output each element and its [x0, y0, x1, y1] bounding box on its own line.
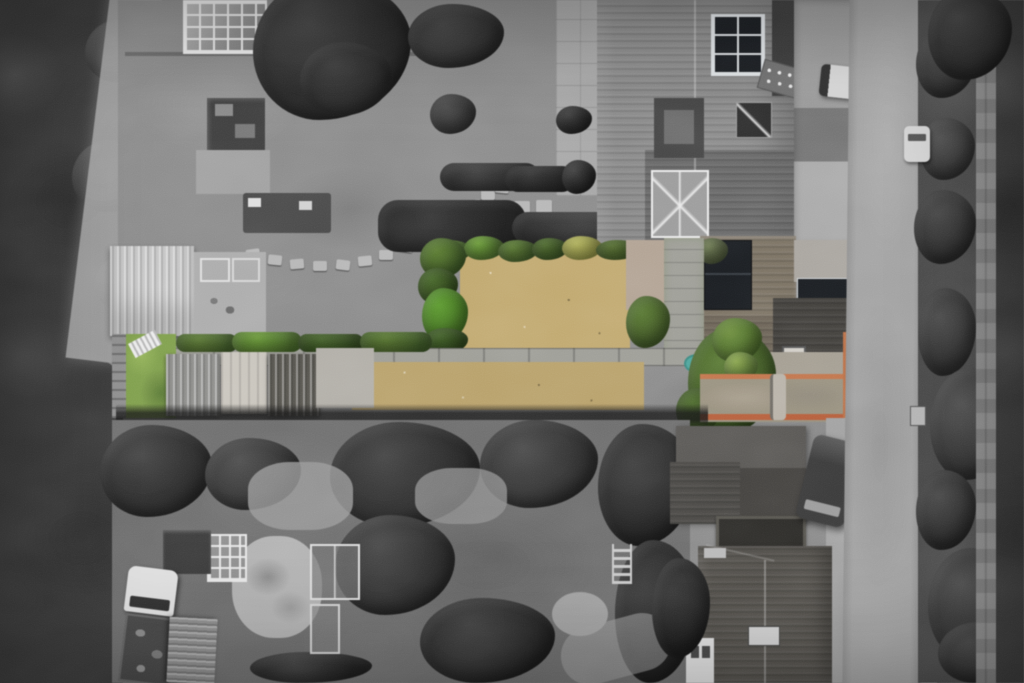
bottom-house-roof — [698, 546, 832, 683]
concrete-pad — [316, 348, 374, 408]
bottom-house-chimney — [748, 626, 780, 646]
van-windshield — [804, 499, 841, 517]
white-patio-top-left — [194, 252, 266, 336]
drain-pipe — [770, 374, 786, 420]
car-window-band — [908, 134, 926, 141]
planter-boxes — [243, 193, 331, 233]
stepping-stone — [290, 258, 305, 269]
subject-lawn-lower — [352, 362, 644, 410]
ground-light-patch — [415, 468, 507, 524]
road-right — [842, 0, 927, 683]
stepping-stone — [379, 250, 393, 260]
patio-frame — [232, 258, 260, 282]
stepping-stone — [335, 259, 350, 271]
stepping-stone — [481, 190, 495, 200]
shed-roof-item — [215, 104, 233, 116]
hedge-strip-left — [232, 332, 302, 352]
patio-top-left — [196, 150, 270, 194]
roof-light-item — [704, 548, 726, 558]
roadside-bin — [910, 406, 926, 426]
conservatory — [651, 170, 709, 238]
patio-clutter — [204, 292, 244, 322]
planter-lid — [248, 198, 261, 207]
gable-window — [702, 646, 710, 658]
garage-annex-roof — [670, 462, 740, 524]
stepping-stone — [313, 261, 327, 271]
subject-lawn-upper — [460, 250, 630, 354]
stepping-stone — [268, 254, 283, 265]
roof-hip-ridge — [764, 560, 766, 683]
greenhouse-bottom — [207, 534, 247, 582]
shed-roof-item — [235, 124, 255, 138]
cold-frames-small — [310, 604, 340, 654]
photo-layers — [0, 0, 1024, 683]
extension-dark-roof — [654, 98, 704, 158]
solar-panel-array — [711, 14, 765, 76]
cold-frames — [310, 544, 360, 600]
far-right-trees — [996, 0, 1024, 683]
extension-roof-panel — [664, 110, 694, 144]
stepping-stone — [358, 255, 373, 266]
light-shed-roof — [110, 246, 194, 336]
paved-path-to-house — [664, 238, 704, 354]
parked-car-verge — [904, 126, 930, 162]
long-shed-bottom-left — [166, 617, 217, 683]
roof-skylight — [736, 102, 772, 138]
hedge-strip-left — [176, 334, 238, 352]
planter-lid — [299, 201, 312, 210]
ground-light-patch — [248, 462, 353, 530]
ladder — [612, 544, 632, 584]
dark-shed-top-left — [207, 98, 265, 156]
aerial-photo-scene — [0, 0, 1024, 683]
patio-frame — [200, 258, 230, 282]
dark-shed-bottom — [163, 530, 211, 574]
